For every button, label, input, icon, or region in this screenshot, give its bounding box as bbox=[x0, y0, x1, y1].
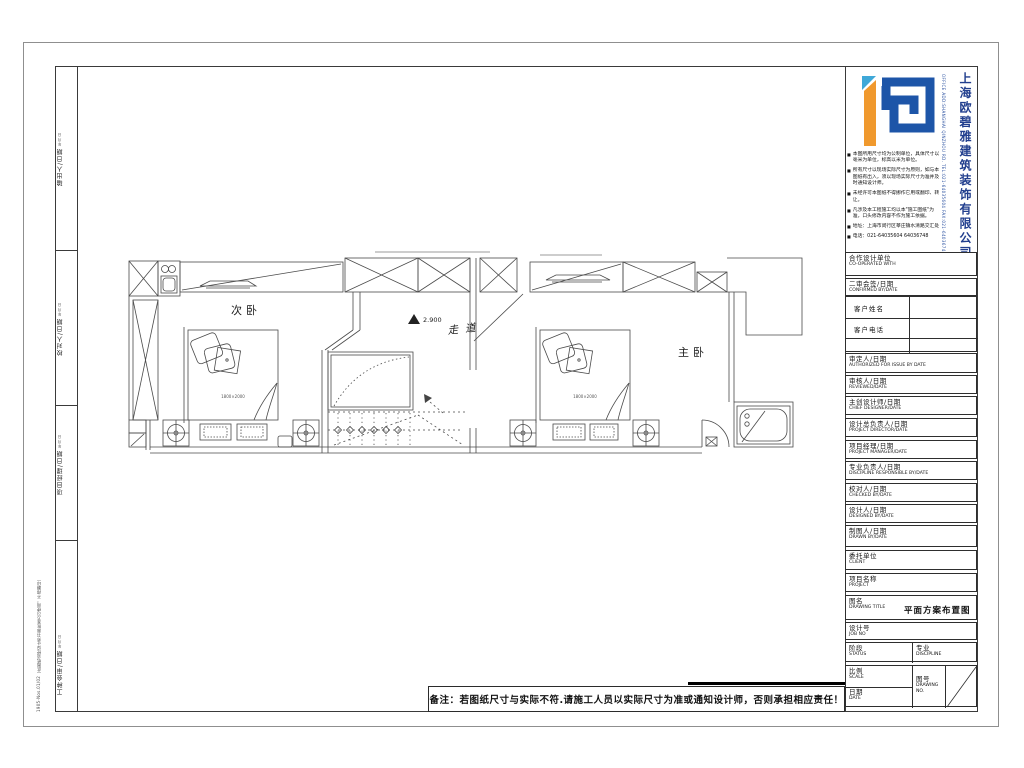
strip-field-checked: 校对人/日期 年 月 日 bbox=[56, 285, 76, 375]
company-logo bbox=[852, 70, 944, 154]
strip-field-label: 工种会审/日期 bbox=[56, 650, 65, 695]
tb-co-operated: 合作设计单位CO-OPERATED WITH bbox=[845, 252, 977, 276]
tb-scale: 比例SCALE bbox=[846, 666, 912, 687]
tb-date: 日期DATE bbox=[846, 687, 912, 708]
footer-note: 备注：若图纸尺寸与实际不符.请施工人员以实际尺寸为准或通知设计师，否则承担相应责… bbox=[428, 686, 845, 712]
tb-status-discipline: 阶段STATUS 专业DISCIPLINE bbox=[845, 642, 977, 662]
note-item: ■凡涉及本工程施工均以本"施工图纸"为准，口头修改内容不作为施工依据。 bbox=[847, 208, 941, 221]
strip-field-joint-review: 工种会审/日期 年 月 日 bbox=[56, 620, 76, 710]
drawing-viewer: { "company": { "name": "上海欧碧雅建筑装饰有限公司", … bbox=[0, 0, 1024, 768]
note-item: ■电话：021-64035604 64036748 bbox=[847, 234, 941, 240]
bullet-icon: ■ bbox=[847, 168, 851, 187]
tb-bottom-table: 比例SCALE 日期DATE 图号DRAWING NO. bbox=[845, 665, 977, 707]
tb-authorized: 审定人/日期AUTHORIZED FOR ISSUE BY DATE bbox=[845, 353, 977, 373]
note-item: ■地址：上海市闵行区莘庄镇水清路交汇处 bbox=[847, 224, 941, 230]
client-table: 客户姓名 客户电话 bbox=[845, 296, 977, 352]
tb-project: 项目名称PROJECT bbox=[845, 573, 977, 592]
left-strip-divider bbox=[77, 66, 78, 712]
title-block-thick-line bbox=[688, 682, 845, 685]
tb-client: 委托单位CLIENT bbox=[845, 550, 977, 570]
tb-drawing-title: 图名 DRAWING TITLE 平面方案布置图 bbox=[845, 595, 977, 620]
tb-discipline: 专业DISCIPLINE bbox=[913, 643, 977, 663]
tb-discipline-responsible: 专业负责人/日期DISCIPLINE RESPONSIBLE BY/DATE bbox=[845, 461, 977, 480]
bullet-icon: ■ bbox=[847, 208, 851, 221]
strip-field-pm: 项目经理/日期 年 月 日 bbox=[56, 420, 76, 510]
general-notes: ■本图所用尺寸均为公制单位，具体尺寸以毫米为单位，标高以米为单位。 ■所有尺寸以… bbox=[847, 152, 941, 244]
client-name-value bbox=[910, 297, 978, 318]
note-item: ■未经许可本图纸不得挪作它用或翻印、转让。 bbox=[847, 191, 941, 204]
logo-orange-bar bbox=[864, 80, 876, 146]
bullet-icon: ■ bbox=[847, 234, 851, 240]
note-item: ■本图所用尺寸均为公制单位，具体尺寸以毫米为单位，标高以米为单位。 bbox=[847, 152, 941, 165]
tb-project-director: 设计总负责人/日期PROJECT DIRECTOR/DATE bbox=[845, 418, 977, 437]
bullet-icon: ■ bbox=[847, 152, 851, 165]
client-phone-label: 客户电话 bbox=[854, 324, 884, 334]
strip-field-label: 项目经理/日期 bbox=[56, 450, 65, 495]
tb-checked: 校对人/日期CHECKED BY/DATE bbox=[845, 483, 977, 502]
tb-job-no: 设计号JOB NO bbox=[845, 622, 977, 640]
tb-drawing-no: 图号DRAWING NO. bbox=[913, 674, 945, 708]
strip-divider bbox=[55, 250, 77, 251]
tb-project-manager: 项目经理/日期PROJECT MANAGER/DATE bbox=[845, 440, 977, 459]
tb-status: 阶段STATUS bbox=[846, 643, 912, 663]
sheet-edge-note: 1905-Nos.01/02（此图纸须经设计师书面批准方可使用，不得翻印） bbox=[36, 540, 48, 712]
drawing-no-diagonal bbox=[946, 666, 977, 708]
drawing-title-value: 平面方案布置图 bbox=[904, 604, 971, 616]
tb-reviewed: 审核人/日期REVIEWED/DATE bbox=[845, 375, 977, 394]
note-item: ■所有尺寸以现场实际尺寸为原则，如与本图纸有出入，须以现场实际尺寸为准并及时通知… bbox=[847, 168, 941, 187]
client-phone-value bbox=[910, 318, 978, 338]
tb-drawn: 制图人/日期DRAWN BY/DATE bbox=[845, 525, 977, 547]
strip-divider bbox=[55, 405, 77, 406]
company-name-vertical: 上海欧碧雅建筑装饰有限公司 bbox=[948, 72, 974, 272]
strip-divider bbox=[55, 540, 77, 541]
bullet-icon: ■ bbox=[847, 191, 851, 204]
inner-frame bbox=[55, 66, 978, 712]
tb-designed: 设计人/日期DESIGNED BY/DATE bbox=[845, 504, 977, 523]
tb-confirmed: 二审会签/日期CONFIRMED BY/DATE bbox=[845, 278, 977, 296]
strip-field-label: 输出人/日期 bbox=[56, 148, 65, 186]
bullet-icon: ■ bbox=[847, 224, 851, 230]
client-name-label: 客户姓名 bbox=[854, 303, 884, 313]
strip-field-output: 输出人/日期 年 月 日 bbox=[56, 115, 76, 205]
tb-chief-designer: 主创设计师/日期CHIEF DESIGNER/DATE bbox=[845, 396, 977, 415]
strip-field-label: 校对人/日期 bbox=[56, 318, 65, 356]
